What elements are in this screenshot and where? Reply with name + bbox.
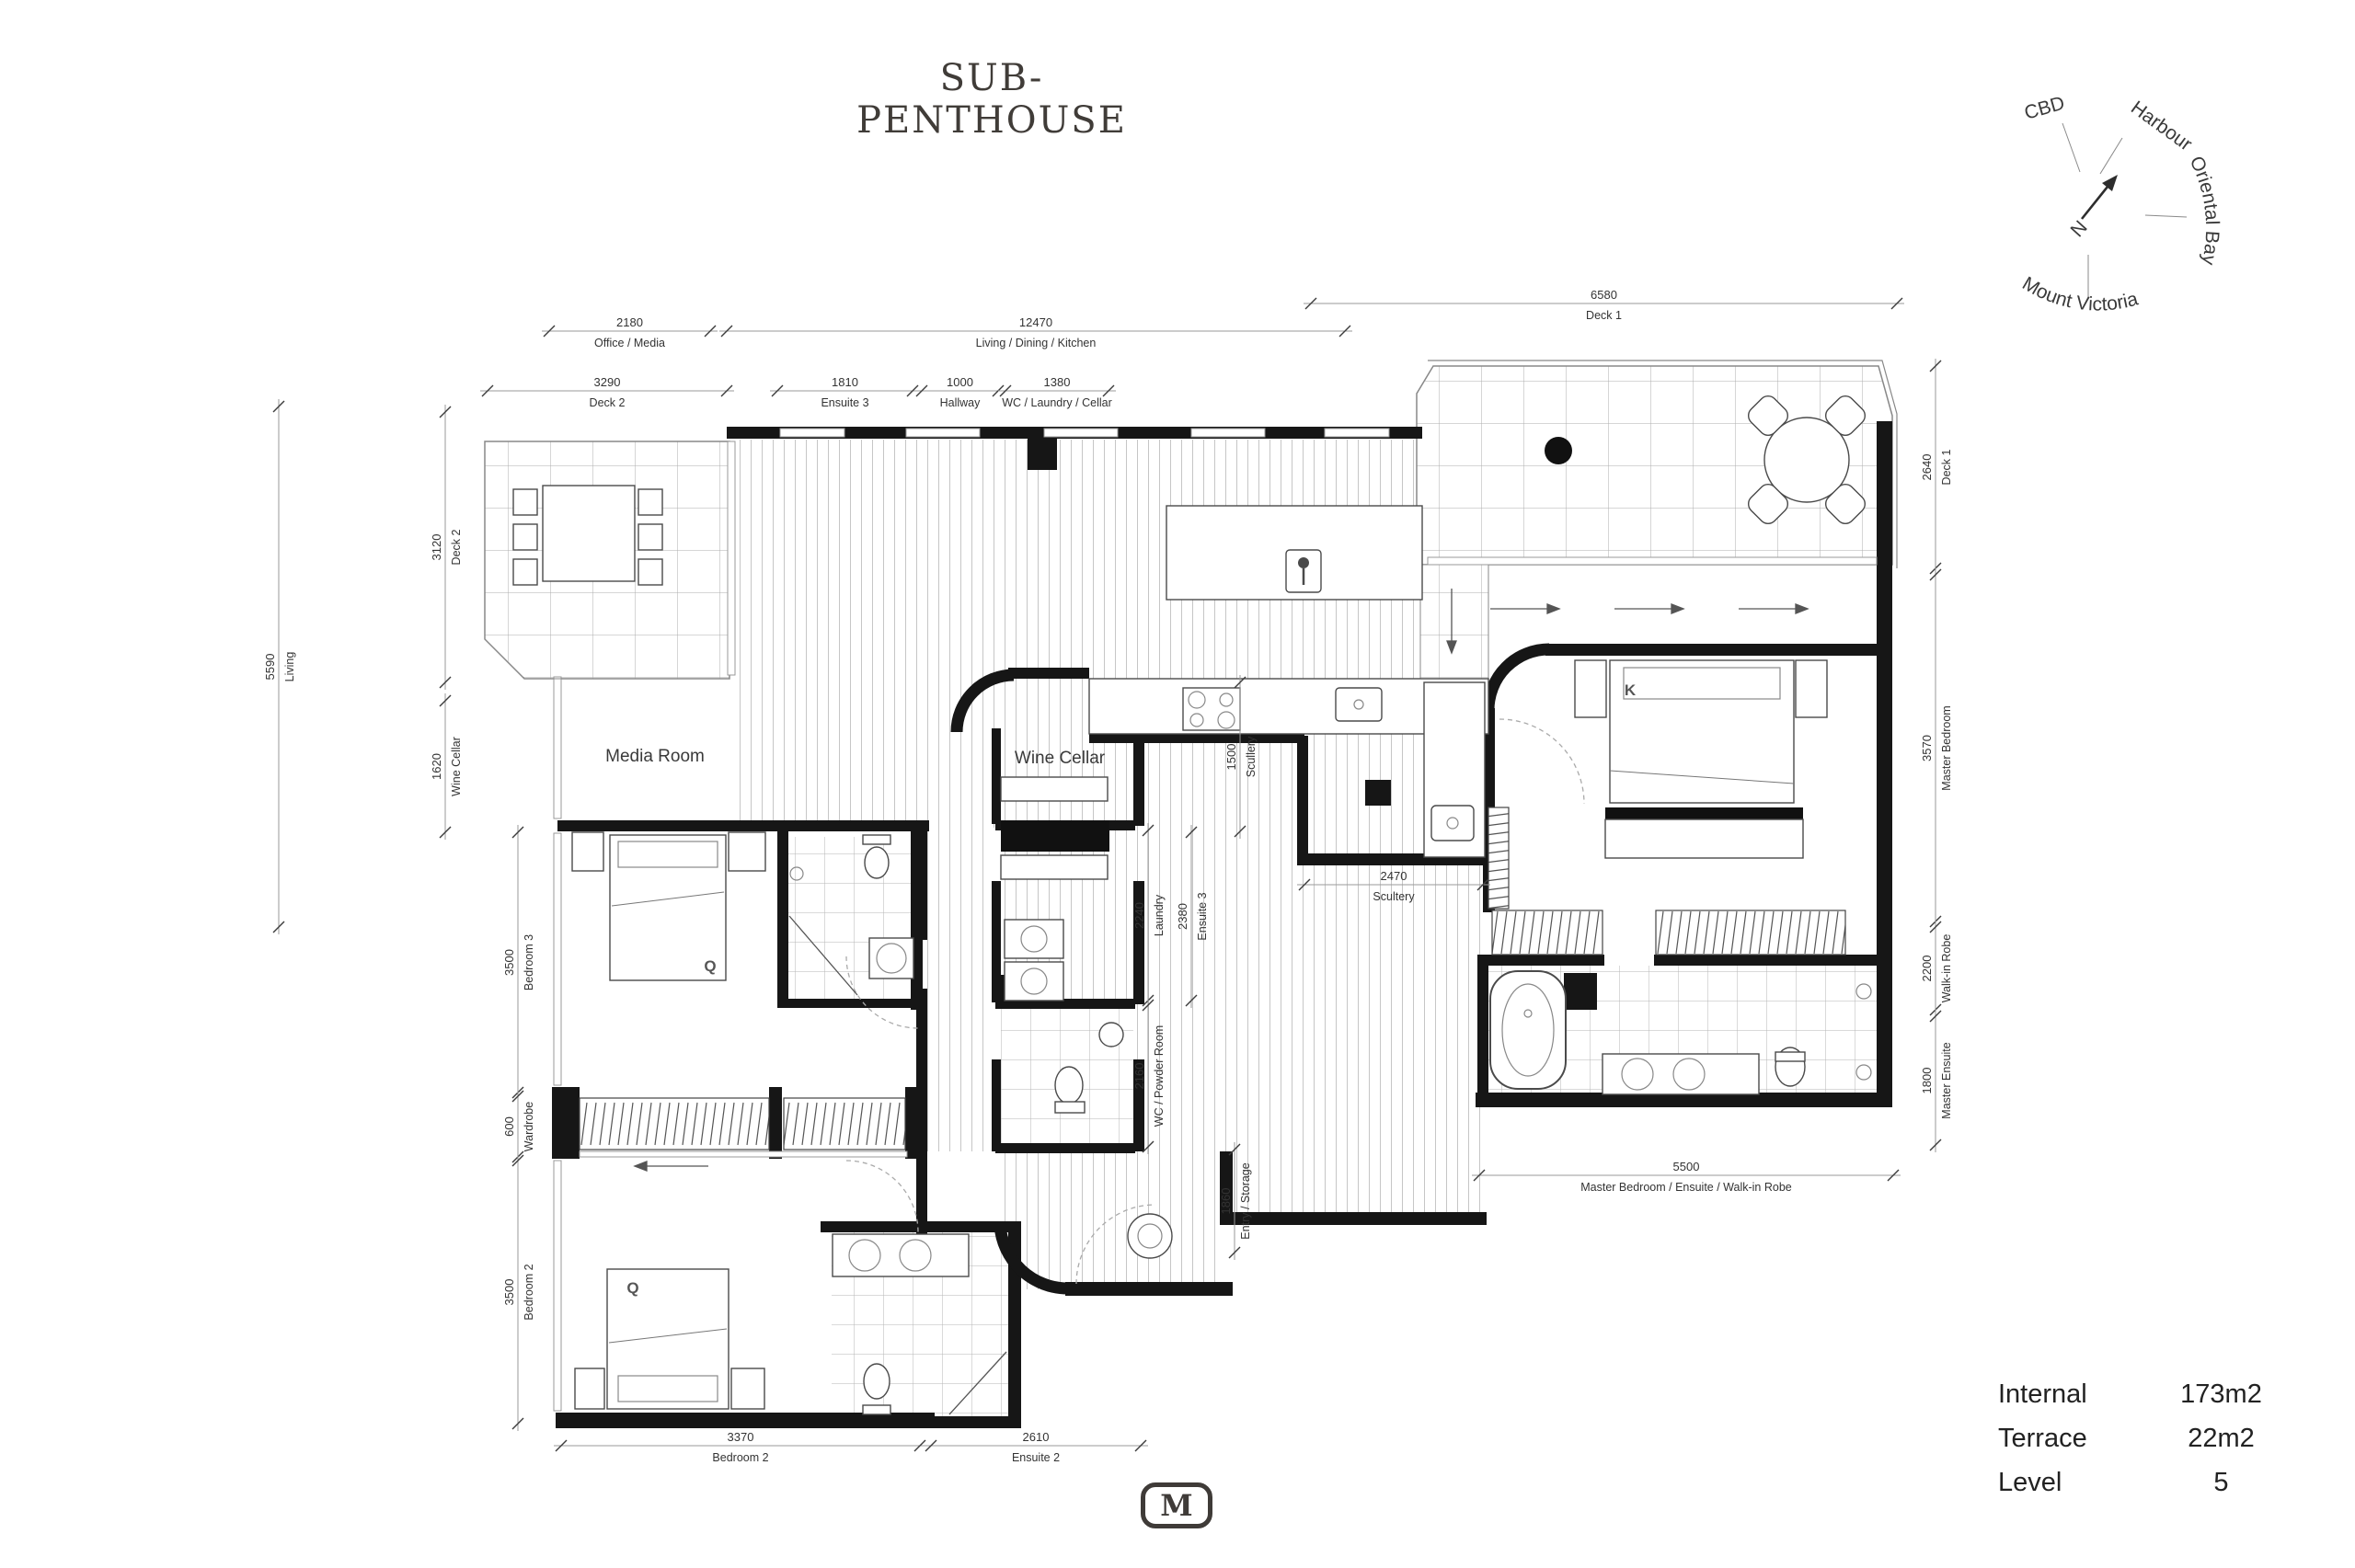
column [1564,973,1597,1010]
svg-text:WC / Laundry / Cellar: WC / Laundry / Cellar [1002,396,1111,409]
info-row-internal: Internal 173m2 [1998,1372,2283,1416]
bathtub [1490,971,1566,1089]
svg-text:3120: 3120 [430,534,443,561]
dimension: 3290Deck 2 [480,375,734,409]
label-king-bed: K [1625,681,1637,699]
svg-text:Scultery: Scultery [1373,890,1415,903]
info-label: Internal [1998,1379,2087,1410]
dimension: 1620Wine Cellar [430,693,463,840]
dimension: 2610Ensuite 2 [924,1430,1148,1464]
svg-text:600: 600 [502,1116,516,1137]
svg-text:Hallway: Hallway [940,396,982,409]
wine-cellar-racks [1001,777,1109,879]
svg-text:N: N [2067,217,2092,242]
svg-text:1380: 1380 [1044,375,1071,389]
dimension: 3570Master Bedroom [1920,567,1953,929]
svg-text:5500: 5500 [1673,1160,1700,1173]
dimension: 1810Ensuite 3 [770,375,920,409]
svg-text:Master Ensuite: Master Ensuite [1940,1042,1953,1118]
svg-text:2380: 2380 [1176,903,1189,930]
dimension: 1800Master Ensuite [1920,1009,1953,1152]
svg-text:Laundry: Laundry [1153,894,1166,936]
svg-text:Bedroom 3: Bedroom 3 [523,934,535,990]
svg-text:Ensuite 3: Ensuite 3 [1196,892,1209,940]
svg-text:1500: 1500 [1224,744,1238,771]
dimension: 5590Living [263,399,296,934]
svg-text:WC / Powder Room: WC / Powder Room [1153,1025,1166,1127]
svg-text:1860: 1860 [1219,1188,1233,1215]
svg-text:Living / Dining / Kitchen: Living / Dining / Kitchen [976,337,1097,349]
svg-text:Office / Media: Office / Media [594,337,665,349]
dimension: 2640Deck 1 [1920,359,1953,576]
dimension: 6580Deck 1 [1304,288,1904,322]
svg-text:3370: 3370 [728,1430,754,1444]
scullery-sink [1431,806,1474,841]
svg-text:2160: 2160 [1132,1063,1146,1090]
svg-text:1800: 1800 [1920,1068,1934,1094]
label-media-room: Media Room [605,747,705,766]
master-bedroom [1575,660,1827,858]
compass-rose: N CBD Harbour Oriental Bay Mount Victori… [1982,57,2341,370]
column [1028,439,1057,470]
info-label: Level [1998,1468,2062,1498]
svg-text:3500: 3500 [502,1279,516,1306]
svg-text:Master Bedroom: Master Bedroom [1940,705,1953,790]
deck-1 [1417,361,1897,679]
svg-text:2470: 2470 [1381,869,1407,883]
svg-text:Walk-in Robe: Walk-in Robe [1940,934,1953,1003]
dimension: 2180Office / Media [542,315,718,349]
dimension: 5500Master Bedroom / Ensuite / Walk-in R… [1472,1160,1901,1194]
svg-text:3290: 3290 [594,375,621,389]
dimension: 3370Bedroom 2 [554,1430,927,1464]
dimension: 3500Bedroom 3 [502,825,535,1100]
svg-text:2180: 2180 [616,315,643,329]
svg-text:3570: 3570 [1920,735,1934,761]
bed [607,1269,729,1409]
info-value: 22m2 [2159,1424,2283,1454]
vanity [1603,1054,1759,1094]
svg-text:Deck 2: Deck 2 [450,530,463,566]
svg-text:Master Bedroom / Ensuite / Wal: Master Bedroom / Ensuite / Walk-in Robe [1580,1181,1792,1194]
svg-text:12470: 12470 [1019,315,1052,329]
bedroom-2 [575,1269,764,1409]
bedroom-3 [572,832,765,980]
svg-text:3500: 3500 [502,949,516,976]
label-queen-bed-3: Q [704,957,716,975]
label-wine-cellar: Wine Cellar [1015,749,1106,768]
dimension: 1380WC / Laundry / Cellar [998,375,1116,409]
dimension: 3120Deck 2 [430,405,463,690]
dimension: 1000Hallway [914,375,1005,409]
svg-text:2240: 2240 [1132,902,1146,929]
dimension: 600Wardrobe [502,1089,535,1164]
compass-label-oriental-bay: Oriental Bay [2186,153,2223,267]
svg-text:2200: 2200 [1920,956,1934,982]
svg-text:1810: 1810 [832,375,858,389]
scullery [1424,682,1485,857]
svg-text:2640: 2640 [1920,454,1934,481]
svg-text:5590: 5590 [263,654,277,681]
brand-logo: M [1141,1482,1212,1528]
svg-text:Deck 1: Deck 1 [1586,309,1622,322]
svg-text:2610: 2610 [1023,1430,1050,1444]
entry [1128,1214,1172,1258]
info-value: 5 [2159,1468,2283,1498]
svg-text:Deck 1: Deck 1 [1940,450,1953,486]
svg-text:1000: 1000 [947,375,973,389]
compass-label-cbd: CBD [2022,92,2067,123]
deck-2 [485,441,729,679]
dimension: 2200Walk-in Robe [1920,920,1953,1017]
svg-text:Wardrobe: Wardrobe [523,1102,535,1151]
column [1365,780,1391,806]
svg-text:Wine Cellar: Wine Cellar [450,737,463,796]
svg-text:Ensuite 2: Ensuite 2 [1012,1451,1060,1464]
wardrobes [580,1098,905,1150]
svg-text:Bedroom 2: Bedroom 2 [712,1451,768,1464]
round-column [1545,437,1572,464]
logo-letter: M [1160,1491,1192,1520]
svg-text:1620: 1620 [430,753,443,780]
svg-text:Scullery: Scullery [1245,736,1258,777]
dimension: 3500Bedroom 2 [502,1153,535,1431]
svg-text:Ensuite 3: Ensuite 3 [821,396,868,409]
label-queen-bed-2: Q [626,1279,638,1297]
compass-label-harbour: Harbour [2127,97,2196,155]
dimension: 12470Living / Dining / Kitchen [719,315,1352,349]
north-arrow: N [2067,175,2118,241]
svg-text:Living: Living [283,652,296,682]
info-label: Terrace [1998,1424,2087,1454]
area-info-table: Internal 173m2 Terrace 22m2 Level 5 [1998,1372,2283,1505]
kitchen-sink [1336,688,1382,721]
svg-text:6580: 6580 [1591,288,1617,302]
svg-text:Deck 2: Deck 2 [590,396,626,409]
info-row-level: Level 5 [1998,1460,2283,1505]
compass-label-mount-victoria: Mount Victoria [2018,273,2141,315]
floorplan-page: { "title": "SUB-PENTHOUSE", "compass": {… [0,0,2355,1568]
svg-text:Bedroom 2: Bedroom 2 [523,1264,535,1320]
info-row-terrace: Terrace 22m2 [1998,1416,2283,1460]
info-value: 173m2 [2159,1379,2283,1410]
svg-text:Entry / Storage: Entry / Storage [1239,1162,1252,1239]
